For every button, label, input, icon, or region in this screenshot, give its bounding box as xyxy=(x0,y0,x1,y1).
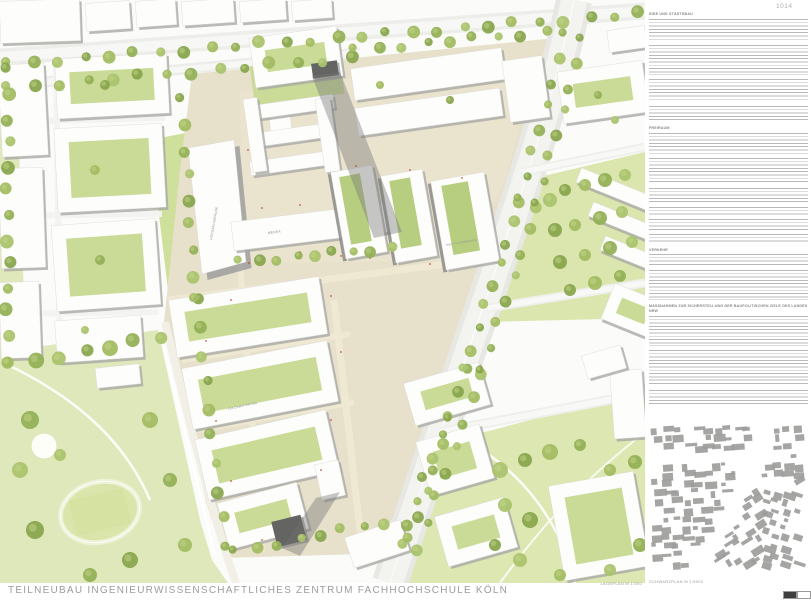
text-paragraph-greeked xyxy=(649,316,808,346)
text-paragraph-greeked xyxy=(649,219,808,230)
text-section-massnahmen: MASSNAHMEN ZUR SICHERSTELLUNG DER BAUPOL… xyxy=(649,304,808,403)
keyplan-schwarzplan: SCHWARZPLAN M 1:5000 xyxy=(649,423,809,600)
plan-scale-caption: LAGEPLAN M 1:500 xyxy=(566,581,642,586)
site-plan-drawing: HÖRSAALGEBÄUDE MENSA INSTITUTSGEBÄUDE TB… xyxy=(0,0,645,583)
scale-bar-segment xyxy=(797,591,811,599)
text-section-freiraum: FREIRAUM xyxy=(649,126,808,244)
section-heading: VERKEHR xyxy=(649,248,808,252)
page-number: 1014 xyxy=(776,3,792,10)
scale-bar xyxy=(783,591,811,599)
site-plan: HÖRSAALGEBÄUDE MENSA INSTITUTSGEBÄUDE TB… xyxy=(0,0,645,583)
section-heading: IDEE UND STÄDTEBAU xyxy=(649,12,808,16)
board-title: TEILNEUBAU INGENIEURWISSENSCHAFTLICHES Z… xyxy=(8,585,508,596)
section-heading: FREIRAUM xyxy=(649,126,808,130)
text-paragraph-greeked xyxy=(649,45,808,75)
text-paragraph-greeked xyxy=(649,19,808,41)
pond xyxy=(31,433,57,459)
text-paragraph-greeked xyxy=(649,390,808,404)
text-paragraph-greeked xyxy=(649,254,808,266)
presentation-board: 1014 xyxy=(0,0,811,600)
text-paragraph-greeked xyxy=(649,350,808,386)
text-paragraph-greeked xyxy=(649,234,808,244)
text-paragraph-greeked xyxy=(649,207,808,215)
text-paragraph-greeked xyxy=(649,79,808,102)
section-heading: MASSNAHMEN ZUR SICHERSTELLUNG DER BAUPOL… xyxy=(649,304,808,313)
text-paragraph-greeked xyxy=(649,270,808,300)
keyplan-caption: SCHWARZPLAN M 1:5000 xyxy=(649,579,703,584)
text-section-verkehr: VERKEHR xyxy=(649,248,808,301)
text-paragraph-greeked xyxy=(649,188,808,203)
schwarzplan-drawing xyxy=(649,423,809,577)
text-paragraph-greeked xyxy=(649,106,808,122)
scale-bar-segment xyxy=(783,591,797,599)
text-section-idee: IDEE UND STÄDTEBAU xyxy=(649,12,808,122)
text-paragraph-greeked xyxy=(649,158,808,184)
description-column: IDEE UND STÄDTEBAU FREIRAUM VERKEHR MASS… xyxy=(649,12,808,408)
text-paragraph-greeked xyxy=(649,133,808,154)
